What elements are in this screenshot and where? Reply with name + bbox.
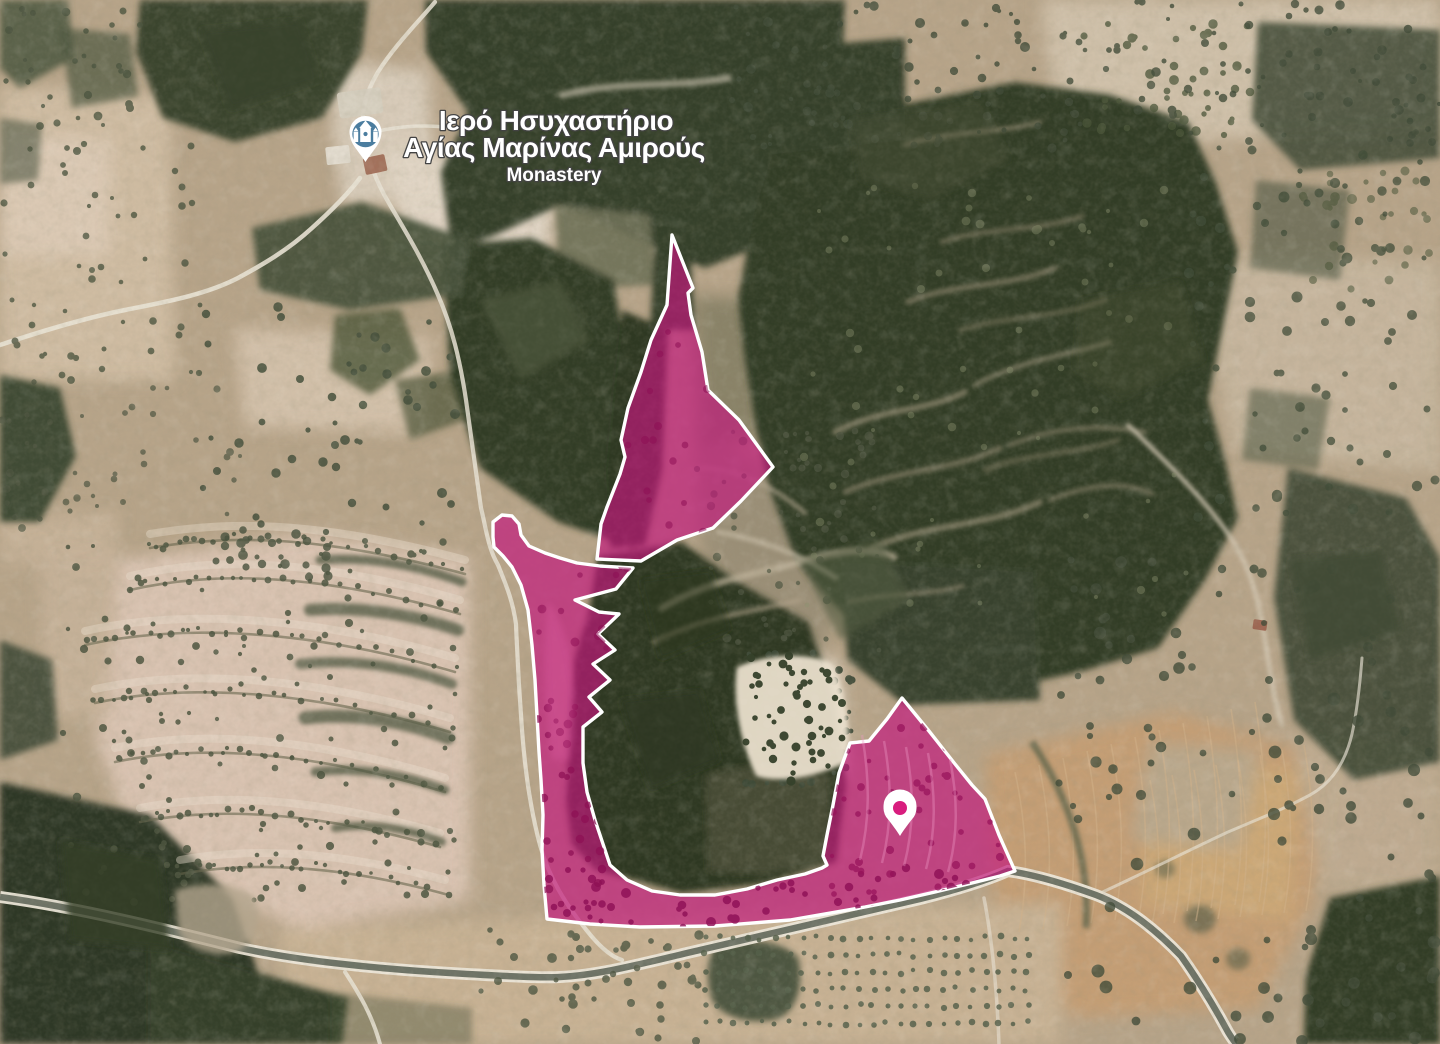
svg-text:Αγίας Μαρίνας Αμιρούς: Αγίας Μαρίνας Αμιρούς <box>403 132 705 163</box>
svg-text:Monastery: Monastery <box>506 165 601 186</box>
